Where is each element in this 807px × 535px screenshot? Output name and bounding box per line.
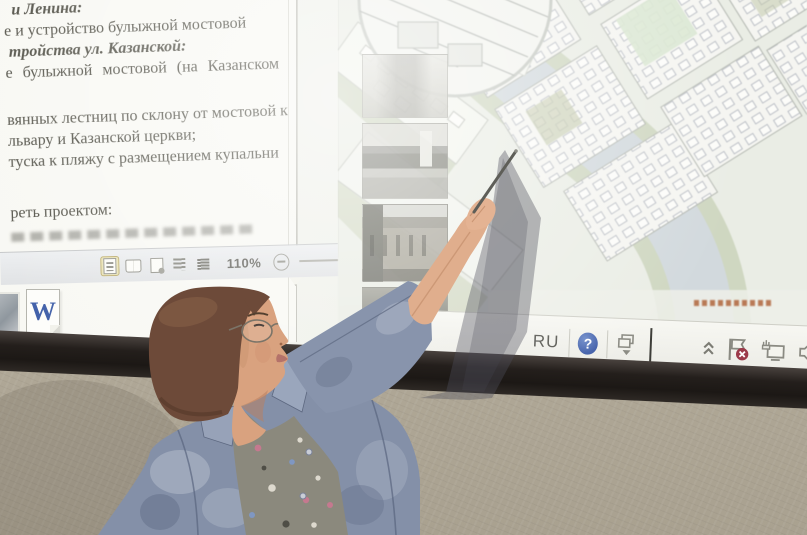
presenter-woman xyxy=(0,0,807,535)
photo-of-presenter-at-projection-screen: и Ленина: е и устройство булыжной мостов… xyxy=(0,0,807,535)
nostril xyxy=(280,343,283,346)
pen-tip xyxy=(514,149,518,153)
